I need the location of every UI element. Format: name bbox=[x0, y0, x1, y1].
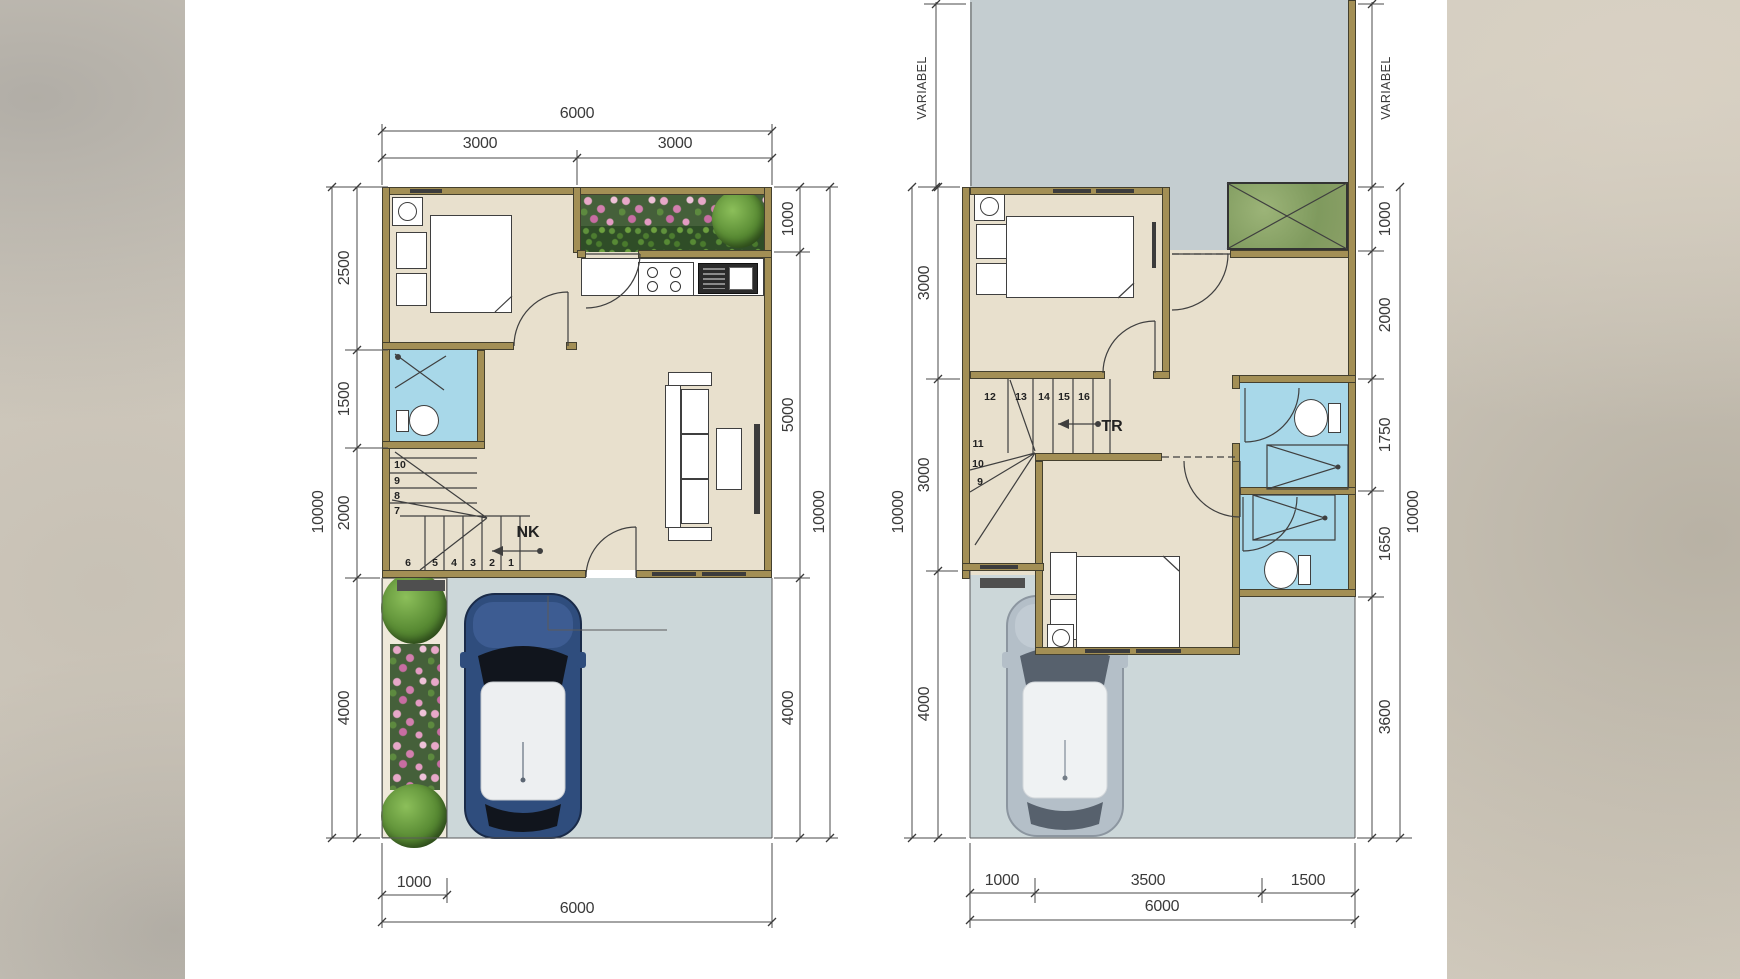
tv-icon bbox=[754, 424, 760, 514]
wall bbox=[1230, 250, 1356, 258]
dim-label: 1500 bbox=[337, 382, 353, 416]
stair-step-number: 14 bbox=[1038, 392, 1050, 403]
stair-step-number: 1 bbox=[508, 558, 514, 569]
wardrobe bbox=[976, 224, 1007, 259]
dim-label: 3000 bbox=[917, 266, 933, 300]
wall bbox=[1232, 375, 1240, 389]
stair-step-number: 7 bbox=[394, 506, 400, 517]
lamp-icon bbox=[398, 202, 417, 221]
stair-step-number: 16 bbox=[1078, 392, 1090, 403]
dim-label: 10000 bbox=[311, 491, 327, 534]
dim-label: 10000 bbox=[891, 491, 907, 534]
dim-label: 5000 bbox=[781, 398, 797, 432]
kitchen-sink-icon bbox=[698, 263, 758, 294]
wall bbox=[970, 371, 1105, 379]
stair-step-number: 11 bbox=[972, 439, 983, 450]
stair-step-number: 9 bbox=[394, 476, 400, 487]
variable-yard bbox=[970, 0, 1356, 187]
dim-label: 6000 bbox=[560, 106, 594, 122]
stove-icon bbox=[638, 262, 694, 296]
wall bbox=[382, 342, 514, 350]
sofa-armrest bbox=[668, 372, 712, 386]
dim-label: 10000 bbox=[1406, 491, 1422, 534]
dim-label: 1750 bbox=[1378, 418, 1394, 452]
bed bbox=[1076, 556, 1180, 648]
doormat bbox=[397, 580, 445, 591]
wall bbox=[577, 250, 586, 258]
tree-icon bbox=[712, 190, 766, 248]
dim-label-variable: VARIABEL bbox=[1380, 56, 1393, 119]
wall bbox=[962, 187, 970, 579]
sofa-armrest bbox=[668, 527, 712, 541]
dim-label: 4000 bbox=[337, 691, 353, 725]
wall bbox=[382, 570, 586, 578]
toilet-tank-icon bbox=[396, 410, 409, 432]
headboard-cabinet bbox=[1050, 552, 1077, 595]
stair-step-number: 15 bbox=[1058, 392, 1070, 403]
dim-label: 1000 bbox=[397, 875, 431, 891]
stair-step-number: 13 bbox=[1015, 392, 1027, 403]
window bbox=[652, 572, 696, 576]
dim-label: 6000 bbox=[1145, 899, 1179, 915]
dim-label-variable: VARIABEL bbox=[916, 56, 929, 119]
wall bbox=[477, 350, 485, 449]
stair-step-number: 12 bbox=[984, 392, 996, 403]
stair-step-number: 4 bbox=[451, 558, 457, 569]
stair-step-number: 6 bbox=[405, 558, 411, 569]
tv-icon bbox=[1152, 222, 1156, 268]
toilet-icon bbox=[1294, 399, 1328, 437]
bed bbox=[1006, 216, 1134, 298]
dim-label: 1650 bbox=[1378, 527, 1394, 561]
planter-void bbox=[1227, 182, 1348, 250]
stair-direction-label: NK bbox=[516, 525, 539, 541]
wall bbox=[382, 441, 485, 449]
dim-label: 2000 bbox=[1378, 298, 1394, 332]
bed bbox=[430, 215, 512, 313]
wall bbox=[566, 342, 577, 350]
upper-bathroom-1 bbox=[1240, 383, 1348, 487]
dim-label: 10000 bbox=[812, 491, 828, 534]
stair-step-number: 10 bbox=[394, 460, 406, 471]
sofa-back bbox=[665, 385, 681, 528]
lamp-icon bbox=[980, 197, 999, 216]
sofa-seat bbox=[681, 389, 709, 434]
dim-label: 4000 bbox=[781, 691, 797, 725]
doormat bbox=[980, 578, 1025, 588]
wardrobe bbox=[396, 232, 427, 269]
toilet-icon bbox=[409, 405, 439, 436]
window bbox=[1085, 649, 1130, 653]
dim-label: 1000 bbox=[985, 873, 1019, 889]
stair-step-number: 8 bbox=[394, 491, 400, 502]
window bbox=[410, 189, 442, 193]
wall bbox=[573, 187, 581, 253]
flower-bed bbox=[390, 644, 440, 790]
window bbox=[1096, 189, 1134, 193]
lamp-icon bbox=[1052, 629, 1070, 647]
stair-step-number: 5 bbox=[432, 558, 438, 569]
dim-label: 3600 bbox=[1378, 700, 1394, 734]
wardrobe bbox=[976, 263, 1007, 295]
stair-step-number: 10 bbox=[972, 459, 984, 470]
sofa-seat bbox=[681, 479, 709, 524]
stair-step-number: 9 bbox=[977, 477, 983, 488]
wall bbox=[1035, 453, 1162, 461]
dim-label: 3000 bbox=[917, 458, 933, 492]
stair-direction-label: TR bbox=[1101, 419, 1122, 435]
toilet-icon bbox=[1264, 551, 1298, 589]
tree-icon bbox=[381, 784, 447, 848]
dim-label: 3000 bbox=[658, 136, 692, 152]
window bbox=[1053, 189, 1091, 193]
wardrobe bbox=[396, 273, 427, 306]
wall bbox=[1348, 0, 1356, 597]
wall bbox=[1232, 461, 1240, 655]
stair-step-number: 2 bbox=[489, 558, 495, 569]
dim-label: 1000 bbox=[781, 202, 797, 236]
wall bbox=[1232, 375, 1356, 383]
dim-label: 6000 bbox=[560, 901, 594, 917]
sofa-seat bbox=[681, 434, 709, 479]
wall bbox=[1162, 187, 1170, 379]
dim-label: 4000 bbox=[917, 687, 933, 721]
wall bbox=[1035, 461, 1043, 655]
wall bbox=[382, 187, 390, 578]
dim-label: 2500 bbox=[337, 251, 353, 285]
coffee-table bbox=[716, 428, 742, 490]
dim-label: 3000 bbox=[463, 136, 497, 152]
dim-label: 1000 bbox=[1378, 202, 1394, 236]
toilet-tank-icon bbox=[1328, 403, 1341, 433]
wall bbox=[764, 187, 772, 578]
window bbox=[702, 572, 746, 576]
dim-label: 3500 bbox=[1131, 873, 1165, 889]
dim-label: 1500 bbox=[1291, 873, 1325, 889]
wall bbox=[1232, 589, 1356, 597]
car-top-view-blue bbox=[460, 590, 586, 842]
wall bbox=[1153, 371, 1170, 379]
stair-step-number: 3 bbox=[470, 558, 476, 569]
dim-label: 2000 bbox=[337, 496, 353, 530]
wall bbox=[1240, 487, 1356, 495]
architectural-drawing: 6000 3000 3000 10000 2500 1500 2000 4000… bbox=[0, 0, 1740, 979]
wall bbox=[638, 250, 772, 258]
vent bbox=[980, 565, 1018, 569]
toilet-tank-icon bbox=[1298, 555, 1311, 585]
window bbox=[1136, 649, 1181, 653]
